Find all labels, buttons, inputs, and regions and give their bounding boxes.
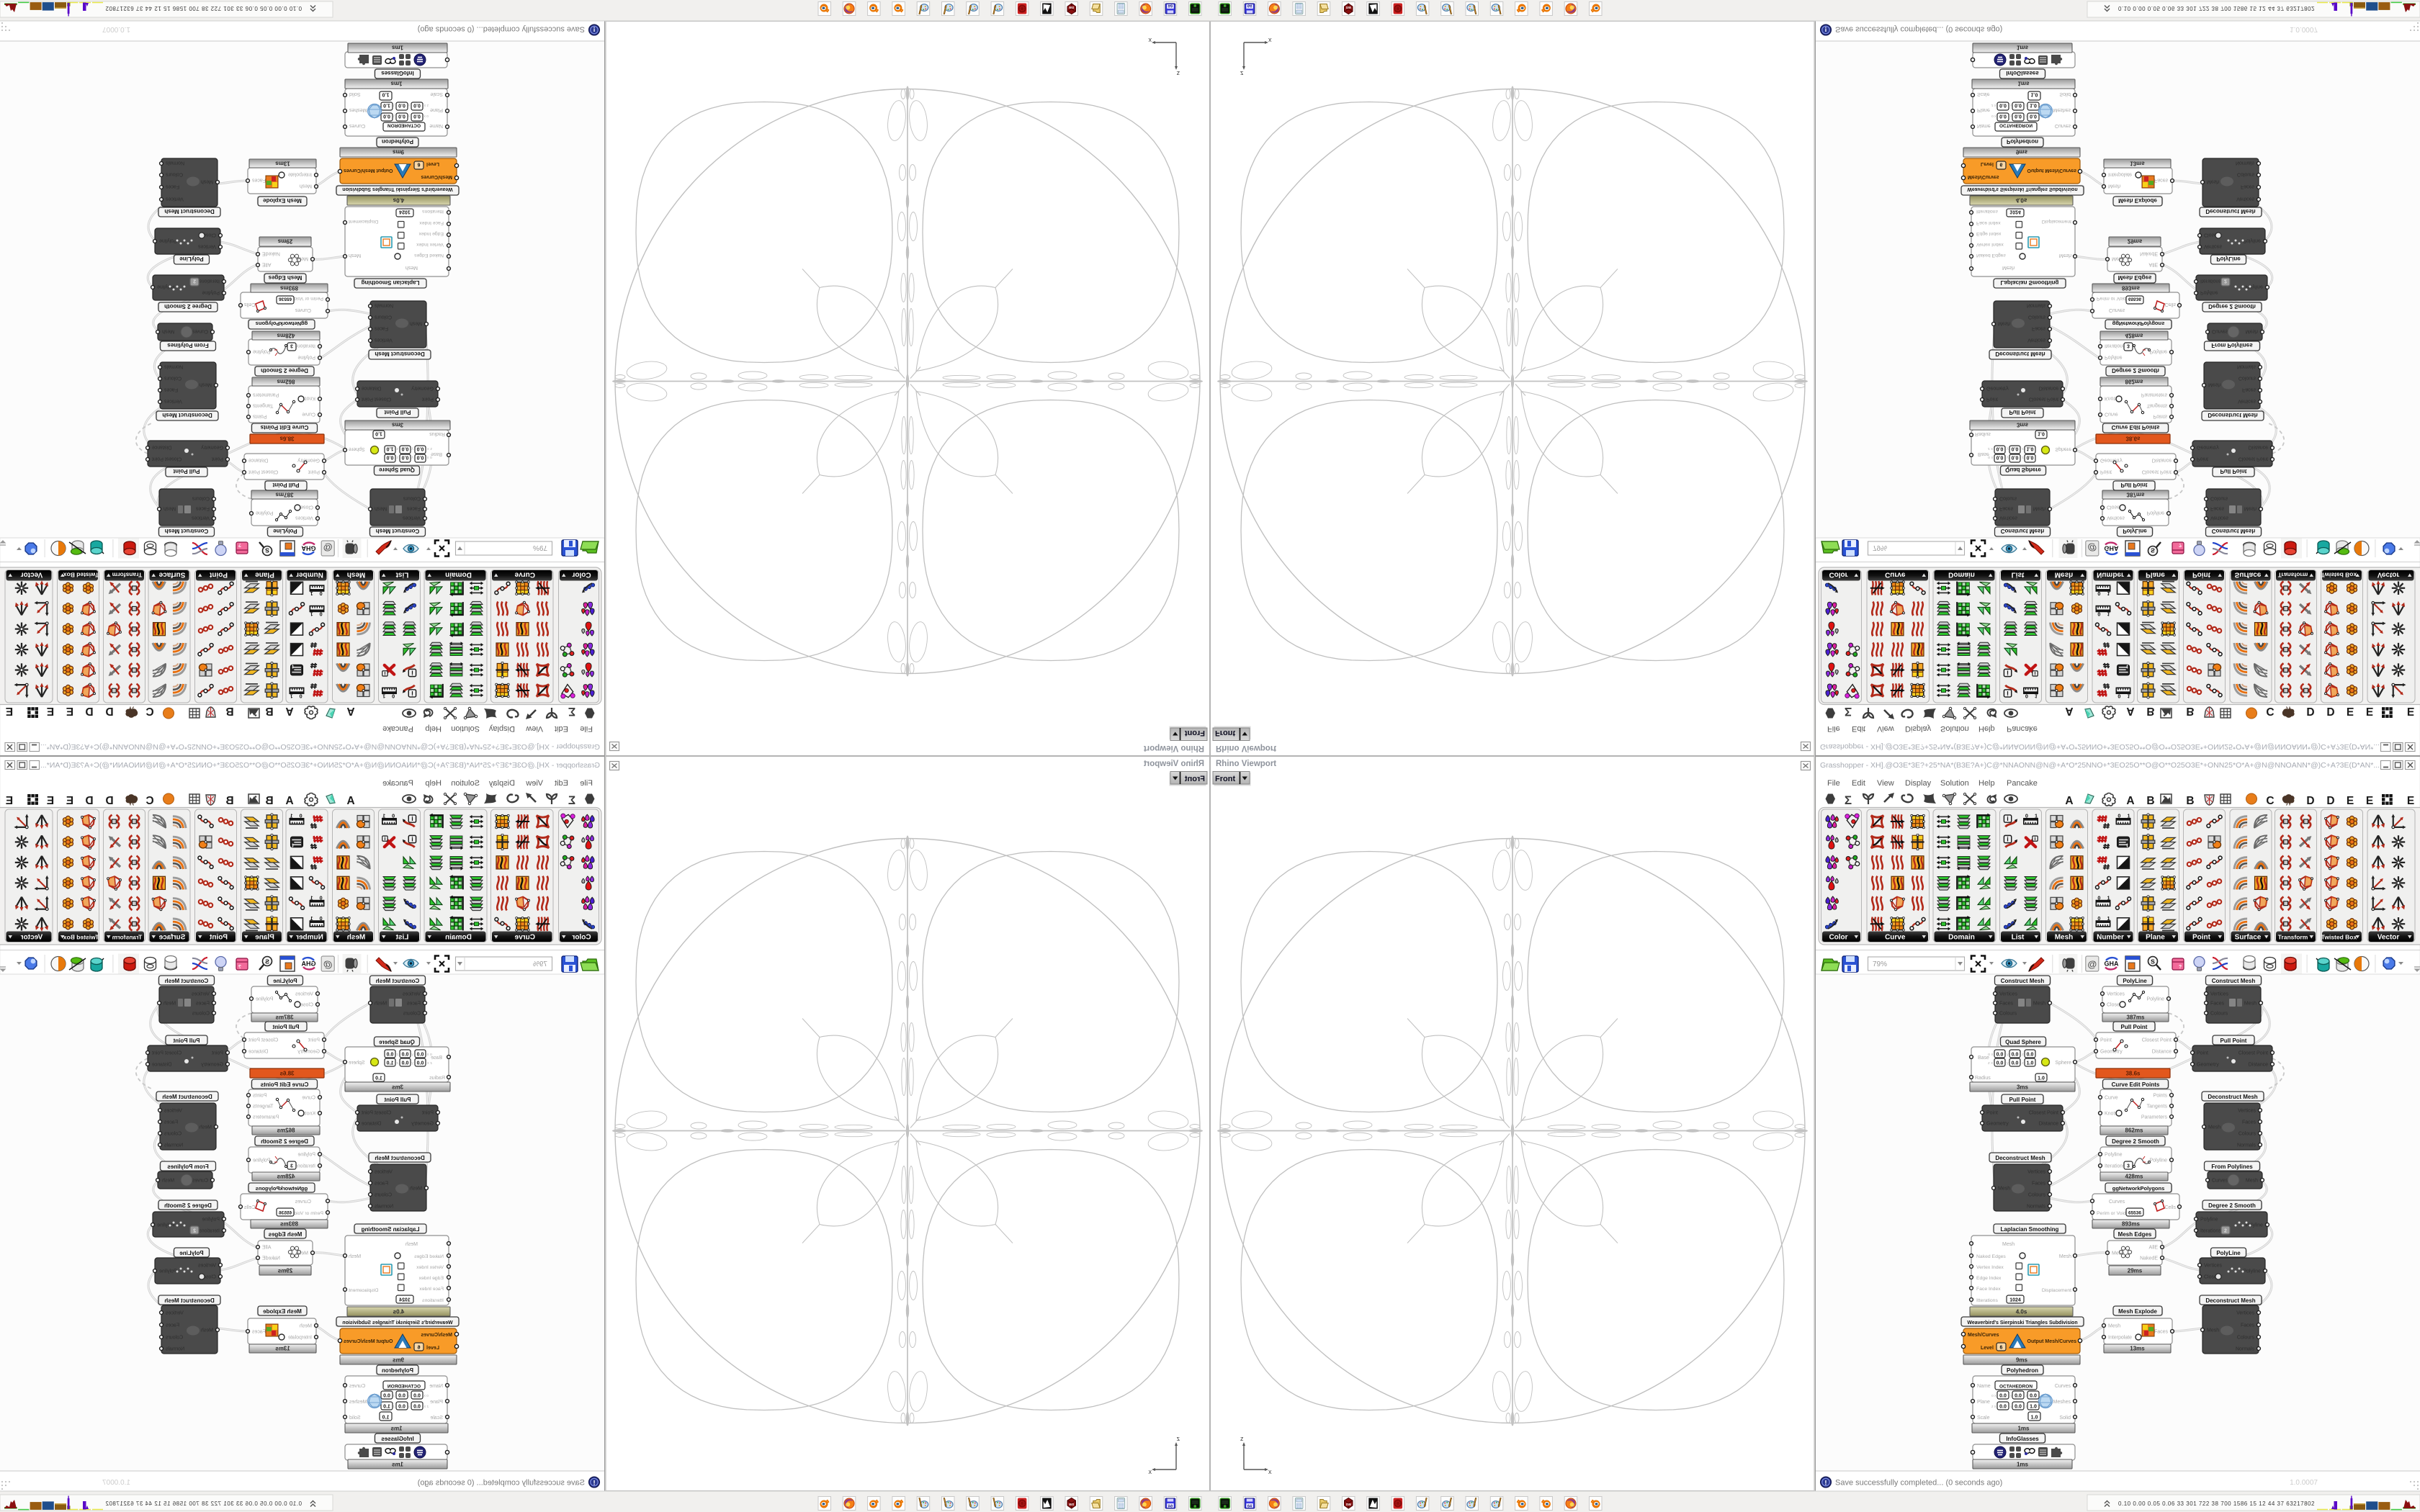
svg-text:z: z — [1240, 1435, 1244, 1442]
svg-text:x: x — [1268, 1468, 1272, 1475]
svg-text:Geometry: Geometry — [2197, 1063, 2219, 1068]
svg-text:Faces: Faces — [2241, 1323, 2255, 1328]
svg-text:Plane: Plane — [2146, 933, 2165, 941]
svg-text:Normals: Normals — [2236, 1347, 2255, 1352]
svg-text:Mesh: Mesh — [2246, 1179, 2258, 1184]
svg-text:862ms: 862ms — [2125, 1127, 2143, 1133]
svg-text:Faces: Faces — [2032, 1182, 2046, 1187]
svg-text:Points: Points — [2154, 1094, 2168, 1099]
svg-text:Itterations: Itterations — [1976, 1298, 1998, 1303]
svg-text:Mesh: Mesh — [2033, 1002, 2045, 1007]
svg-text:File: File — [1827, 779, 1840, 788]
svg-text:Save successfully completed...: Save successfully completed... (0 second… — [1835, 1479, 2002, 1488]
svg-text:Polyline: Polyline — [2243, 1269, 2261, 1274]
svg-text:387ms: 387ms — [2127, 1014, 2145, 1020]
svg-text:1ms: 1ms — [2017, 1425, 2030, 1431]
svg-text:Mesh: Mesh — [1998, 1187, 2010, 1192]
svg-text:Vertices: Vertices — [2107, 992, 2125, 997]
svg-text:Pull Point: Pull Point — [2220, 1038, 2247, 1044]
svg-text:Faces: Faces — [1999, 1002, 2014, 1007]
svg-text:Curves: Curves — [2109, 1200, 2125, 1205]
svg-text:Perim or Void: Perim or Void — [2097, 1211, 2126, 1216]
svg-text:65536: 65536 — [2128, 1210, 2141, 1215]
svg-text:Surface: Surface — [2235, 933, 2262, 941]
svg-text:Transform: Transform — [2278, 933, 2308, 940]
svg-text:y: y — [2007, 1053, 2009, 1057]
svg-text:Closest Point: Closest Point — [2029, 1111, 2058, 1116]
svg-text:0.0: 0.0 — [1996, 1061, 2004, 1066]
svg-text:View: View — [1877, 779, 1894, 788]
svg-text:Domain: Domain — [1948, 933, 1975, 941]
svg-text:Displacement: Displacement — [2042, 1288, 2071, 1293]
svg-text:Deconstruct Mesh: Deconstruct Mesh — [2205, 1297, 2255, 1304]
svg-text:0.0: 0.0 — [2012, 1061, 2019, 1066]
svg-text:Deconstruct Mesh: Deconstruct Mesh — [1995, 1155, 2045, 1161]
svg-text:Degree 2 Smooth: Degree 2 Smooth — [2208, 1202, 2256, 1209]
svg-text:D: D — [2306, 795, 2314, 807]
svg-text:Radius: Radius — [1975, 1076, 1991, 1081]
svg-text:Distance: Distance — [2249, 1063, 2268, 1068]
svg-text:Geometry: Geometry — [1986, 1122, 2009, 1127]
svg-text:Curves: Curves — [2212, 1179, 2228, 1184]
svg-text:Vertices: Vertices — [2236, 1311, 2254, 1316]
svg-text:Colours: Colours — [2238, 1132, 2257, 1137]
svg-text:Colours: Colours — [2210, 1012, 2228, 1017]
svg-text:79%: 79% — [1873, 960, 1887, 968]
svg-text:Iterations: Iterations — [2105, 1164, 2125, 1169]
svg-text:38.6s: 38.6s — [2125, 1071, 2141, 1077]
svg-text:z: z — [2022, 1053, 2024, 1057]
svg-text:Face Index: Face Index — [1976, 1287, 2001, 1292]
svg-text:D: D — [2326, 795, 2334, 807]
svg-text:Deconstruct Mesh: Deconstruct Mesh — [2208, 1094, 2257, 1100]
svg-text:Normals: Normals — [2027, 1205, 2046, 1210]
svg-text:Solid: Solid — [2059, 1416, 2071, 1421]
svg-text:Point: Point — [2100, 1038, 2112, 1043]
svg-text:3: 3 — [2127, 1164, 2130, 1169]
svg-text:9ms: 9ms — [2016, 1356, 2028, 1363]
svg-text:Iterations: Iterations — [2200, 1229, 2221, 1234]
svg-text:4.0s: 4.0s — [2016, 1308, 2027, 1315]
svg-text:Mesh: Mesh — [2207, 1328, 2219, 1333]
svg-text:Point: Point — [2197, 1051, 2208, 1056]
svg-text:Sphere: Sphere — [2055, 1061, 2071, 1066]
svg-text:Output Mesh/Curves: Output Mesh/Curves — [2027, 1339, 2077, 1344]
svg-text:SW: SW — [1346, 1503, 1352, 1506]
svg-text:Mesh/Curves: Mesh/Curves — [1968, 1333, 1999, 1338]
svg-text:Σ: Σ — [1845, 793, 1852, 807]
svg-text:6: 6 — [2000, 1345, 2003, 1350]
svg-text:NakedE: NakedE — [2140, 1256, 2158, 1261]
svg-text:1.0.0007: 1.0.0007 — [2290, 1479, 2318, 1487]
svg-text:Colours: Colours — [1999, 1012, 2017, 1017]
svg-text:Point: Point — [1986, 1111, 1998, 1116]
svg-text:893ms: 893ms — [2122, 1220, 2140, 1227]
svg-text:0.0: 0.0 — [2030, 1393, 2037, 1398]
svg-text:Faces: Faces — [2210, 1002, 2225, 1007]
svg-text:428ms: 428ms — [2125, 1173, 2143, 1179]
svg-text:Vertices: Vertices — [2204, 1264, 2222, 1269]
svg-text:Number: Number — [2097, 933, 2124, 941]
svg-text:InfoGlasses: InfoGlasses — [2006, 1436, 2039, 1442]
svg-text:Naked Edges: Naked Edges — [1976, 1254, 2006, 1259]
svg-text:Faces: Faces — [2154, 1330, 2169, 1335]
svg-text:Vertex Index: Vertex Index — [1976, 1265, 2004, 1270]
svg-text:o x: o x — [1991, 1394, 1996, 1398]
svg-text:Help: Help — [1978, 779, 1995, 788]
svg-text:Rhino Viewport: Rhino Viewport — [1216, 760, 1276, 768]
svg-text:Distance: Distance — [2039, 1122, 2058, 1127]
svg-text:Vector: Vector — [2378, 933, 2400, 941]
svg-text:Edit: Edit — [1852, 779, 1865, 788]
svg-text:0.0: 0.0 — [1996, 1052, 2004, 1057]
svg-text:Plane: Plane — [1977, 1400, 1990, 1405]
svg-text:1.0: 1.0 — [2027, 1061, 2034, 1066]
svg-text:0.0: 0.0 — [1999, 1404, 2007, 1409]
svg-text:1024: 1024 — [2009, 1297, 2021, 1302]
svg-text:2: 2 — [2224, 1228, 2227, 1233]
svg-text:Front: Front — [1215, 775, 1235, 783]
svg-text:OCTAHEDRON: OCTAHEDRON — [1999, 1384, 2033, 1389]
svg-text:Normals: Normals — [2237, 1143, 2257, 1148]
svg-text:C: C — [2266, 795, 2274, 807]
svg-text:Vertices: Vertices — [2027, 1170, 2045, 1175]
svg-text:Curve: Curve — [1885, 933, 1906, 941]
svg-text:Name: Name — [1977, 1384, 1991, 1389]
svg-text:Point: Point — [2192, 933, 2211, 941]
svg-text:13ms: 13ms — [2130, 1345, 2145, 1351]
svg-text:Polyline: Polyline — [2105, 1153, 2123, 1158]
svg-text:Distance: Distance — [2152, 1050, 2172, 1055]
svg-text:Quad Sphere: Quad Sphere — [2005, 1039, 2041, 1045]
svg-text:Closest Point: Closest Point — [2142, 1038, 2172, 1043]
svg-text:@: @ — [2087, 959, 2097, 970]
svg-text:From Polylines: From Polylines — [2211, 1164, 2253, 1170]
svg-text:Mesh: Mesh — [2059, 1254, 2071, 1259]
svg-text:Mesh: Mesh — [2108, 1324, 2120, 1329]
svg-text:A: A — [2126, 795, 2134, 807]
svg-text:Closest Point: Closest Point — [2238, 1051, 2268, 1056]
svg-text:Curve: Curve — [2105, 1096, 2118, 1101]
svg-text:Polyline: Polyline — [2245, 1223, 2263, 1228]
svg-text:Mesh: Mesh — [2244, 1002, 2257, 1007]
svg-text:Faces: Faces — [2242, 1120, 2257, 1125]
svg-text:Level: Level — [1981, 1346, 1994, 1351]
svg-text:!: ! — [1824, 1480, 1827, 1488]
svg-text:Cells: Cells — [2164, 1205, 2176, 1210]
svg-text:0.0: 0.0 — [1999, 1393, 2007, 1398]
svg-text:Pancake: Pancake — [2007, 779, 2038, 788]
svg-text:1.0: 1.0 — [2030, 1404, 2037, 1409]
svg-text:Polyhedron: Polyhedron — [2007, 1367, 2038, 1374]
svg-text:S: S — [2151, 958, 2155, 966]
svg-text:Display: Display — [1905, 779, 1932, 788]
svg-text:Degree 2 Smooth: Degree 2 Smooth — [2112, 1138, 2159, 1145]
svg-text:Edge Index: Edge Index — [1976, 1276, 2002, 1281]
svg-text:Colours: Colours — [2237, 1336, 2255, 1341]
svg-text:ggNetworkPolygons: ggNetworkPolygons — [2112, 1185, 2165, 1192]
svg-text:Geometry: Geometry — [2100, 1050, 2123, 1055]
svg-text:Mesh: Mesh — [2002, 1242, 2015, 1247]
svg-text:Vertices: Vertices — [1999, 992, 2017, 997]
svg-text:Mesh: Mesh — [2208, 1125, 2220, 1130]
svg-text:0.0: 0.0 — [2027, 1052, 2034, 1057]
svg-text:E: E — [2366, 795, 2373, 807]
svg-text:Curves: Curves — [2055, 1384, 2071, 1389]
svg-text:0.0: 0.0 — [2015, 1393, 2022, 1398]
svg-text:3ms: 3ms — [2017, 1084, 2029, 1090]
svg-text:0.0: 0.0 — [2015, 1404, 2022, 1409]
svg-text:Interpolate: Interpolate — [2108, 1336, 2132, 1341]
svg-text:z x: z x — [1988, 1061, 1993, 1066]
svg-text:Scale: Scale — [1977, 1416, 1990, 1421]
svg-text:Parameters: Parameters — [2141, 1115, 2168, 1120]
svg-text:29ms: 29ms — [2128, 1267, 2143, 1274]
svg-text:Solution: Solution — [1940, 779, 1969, 788]
svg-text:0.10 0.00 0.05 0.06 33 30: 0.10 0.00 0.05 0.06 33 301 722 38 700 15… — [2118, 1500, 2315, 1507]
svg-text:1.0: 1.0 — [2038, 1076, 2045, 1081]
svg-text:?: ? — [2179, 965, 2182, 970]
svg-text:Vertices: Vertices — [2238, 1109, 2256, 1114]
svg-text:Polyline: Polyline — [2146, 997, 2164, 1002]
svg-text:PolyLine: PolyLine — [2123, 978, 2147, 984]
svg-text:Colours: Colours — [2028, 1193, 2046, 1198]
svg-text:Twisted Box: Twisted Box — [2321, 933, 2357, 940]
svg-text:Grasshopper - XH].@O3E*3E?+25*: Grasshopper - XH].@O3E*3E?+25*NA*(B3E?A+… — [1820, 761, 2380, 770]
svg-text:B: B — [2146, 795, 2154, 807]
svg-text:E: E — [2347, 795, 2354, 807]
svg-text:Meshes: Meshes — [2053, 1400, 2071, 1405]
svg-text:Curve Edit Points: Curve Edit Points — [2112, 1081, 2160, 1088]
svg-text:AllE: AllE — [2149, 1246, 2159, 1251]
svg-text:List: List — [2012, 933, 2025, 941]
svg-text:Weaverbird's Sierpinski Triang: Weaverbird's Sierpinski Triangles Subdiv… — [1967, 1320, 2077, 1326]
svg-text:Mesh Explode: Mesh Explode — [2118, 1308, 2157, 1315]
svg-text:PolyLine: PolyLine — [2216, 1250, 2241, 1256]
svg-text:z x: z x — [1991, 1405, 1996, 1409]
svg-text:Color: Color — [1829, 933, 1847, 941]
svg-text:Construct Mesh: Construct Mesh — [2212, 978, 2256, 984]
svg-text:y: y — [2007, 1061, 2009, 1066]
svg-text:Tangents: Tangents — [2147, 1104, 2168, 1110]
svg-text:Polyline: Polyline — [2149, 1158, 2167, 1164]
svg-text:Vertices: Vertices — [2210, 992, 2228, 997]
svg-text:Laplacian Smoothing: Laplacian Smoothing — [2001, 1226, 2059, 1233]
svg-text:z: z — [2022, 1061, 2024, 1066]
svg-text:Polyline: Polyline — [2200, 1218, 2218, 1223]
svg-text:Pull Point: Pull Point — [2121, 1024, 2148, 1030]
svg-text:GHA: GHA — [2105, 960, 2120, 968]
svg-text:64: 64 — [1247, 1505, 1252, 1509]
svg-text:A: A — [2065, 795, 2073, 807]
svg-text:Construct Mesh: Construct Mesh — [2001, 978, 2045, 984]
svg-text:1.0: 1.0 — [2031, 1415, 2038, 1420]
svg-text:Mesh: Mesh — [2055, 933, 2074, 941]
svg-text:B: B — [2186, 795, 2194, 807]
svg-text:o x: o x — [1988, 1053, 1994, 1057]
svg-text:Mesh Edges: Mesh Edges — [2118, 1231, 2152, 1238]
svg-text:E: E — [2407, 795, 2414, 807]
svg-text:1ms: 1ms — [2017, 1461, 2029, 1467]
svg-text:0.0: 0.0 — [2012, 1052, 2019, 1057]
svg-text:Pull Point: Pull Point — [2009, 1097, 2036, 1103]
